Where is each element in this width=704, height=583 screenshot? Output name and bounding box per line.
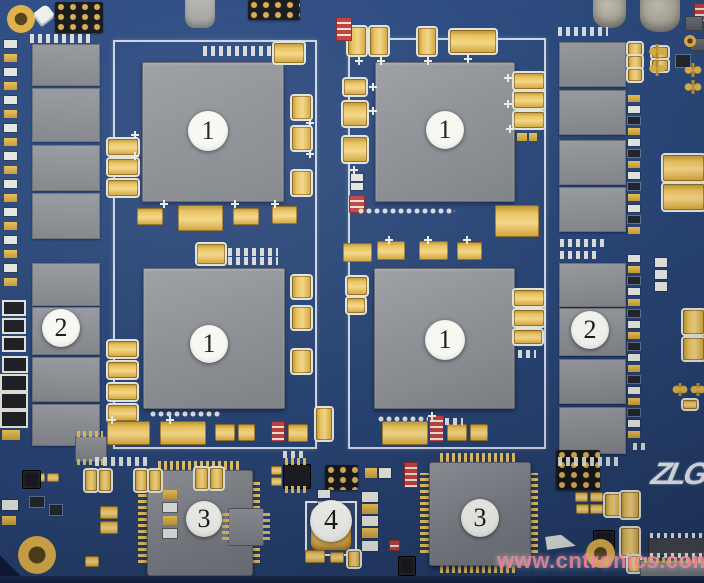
polarity-mark [355, 57, 363, 65]
capacitor [628, 56, 642, 68]
capacitor [590, 504, 603, 514]
pad [4, 180, 17, 188]
memory-chip [559, 140, 626, 185]
capacitor [108, 159, 138, 175]
pad [628, 277, 640, 284]
memory-chip [559, 359, 626, 404]
pcb-board-photo: 1 1 1 1 2 2 3 3 4 ZLG www.cntronics.com [0, 0, 704, 583]
callout-1b: 1 [426, 111, 464, 149]
pad [628, 95, 640, 102]
memory-chip [559, 42, 626, 87]
pad [4, 96, 17, 104]
pad [2, 516, 16, 525]
polarity-mark [306, 119, 314, 127]
capacitor [514, 310, 544, 326]
capacitor [457, 242, 482, 260]
via-pair [690, 383, 704, 396]
zlg-logo: ZLG [648, 456, 704, 492]
polarity-mark [306, 150, 314, 158]
pad [365, 468, 377, 478]
capacitor [343, 243, 372, 262]
pad [4, 152, 17, 160]
capacitor [178, 205, 223, 231]
polarity-mark [166, 416, 174, 424]
pad [4, 124, 17, 132]
memory-chip [559, 90, 626, 135]
capacitor [85, 470, 97, 491]
pad [628, 310, 640, 317]
capacitor [447, 424, 467, 441]
pad [628, 183, 640, 190]
silkscreen-row [228, 257, 278, 265]
polarity-mark [504, 100, 512, 108]
polarity-mark [108, 416, 116, 424]
capacitor [316, 408, 332, 440]
via-pad [7, 5, 35, 33]
capacitor [514, 73, 544, 89]
capacitor [47, 473, 59, 482]
capacitor [108, 180, 138, 196]
capacitor [305, 550, 325, 563]
pad [628, 150, 640, 157]
pad [628, 321, 640, 328]
pad [4, 208, 17, 216]
pad [628, 255, 640, 262]
capacitor [292, 96, 311, 119]
capacitor [195, 468, 208, 489]
pad [628, 194, 640, 201]
polarity-mark [504, 74, 512, 82]
pad [517, 133, 527, 141]
polarity-mark [231, 200, 239, 208]
pad [4, 236, 17, 244]
capacitor [149, 470, 161, 491]
pad [628, 299, 640, 306]
silkscreen-arrow [543, 519, 575, 550]
capacitor [495, 205, 539, 237]
memory-chip [559, 263, 626, 307]
capacitor [683, 310, 704, 334]
silkscreen-row [558, 457, 620, 466]
capacitor [197, 244, 225, 264]
memory-chip [559, 187, 626, 232]
pin-row [77, 431, 103, 437]
pad [655, 270, 667, 279]
capacitor [108, 384, 137, 400]
small-chip [685, 16, 703, 31]
pad [628, 205, 640, 212]
callout-1d: 1 [425, 320, 465, 360]
pad [163, 503, 177, 512]
pad [628, 139, 640, 146]
polarity-mark [369, 107, 377, 115]
pad [2, 300, 26, 316]
polarity-mark [428, 412, 436, 420]
pad [2, 336, 26, 352]
pad [628, 266, 640, 273]
capacitor [621, 492, 639, 518]
capacitor [99, 470, 111, 491]
capacitor [347, 298, 365, 313]
pad [351, 183, 363, 190]
pad [4, 194, 17, 202]
pin-row [263, 512, 270, 540]
capacitor [683, 400, 697, 409]
capacitor [575, 492, 588, 502]
pad [4, 110, 17, 118]
pad [163, 490, 177, 499]
pad [628, 431, 640, 438]
pad [0, 410, 28, 428]
callout-1c: 1 [190, 325, 228, 363]
red-component [271, 421, 285, 442]
silkscreen-row [30, 34, 94, 43]
pad [628, 376, 640, 383]
capacitor [470, 424, 488, 441]
callout-2-left: 2 [42, 309, 80, 347]
capacitor [107, 421, 150, 445]
capacitor [348, 551, 360, 567]
pad [628, 420, 640, 427]
capacitor [344, 79, 366, 95]
pad [362, 504, 378, 514]
pad [529, 133, 537, 141]
capacitor [271, 477, 282, 486]
pin-row [420, 473, 429, 553]
polarity-mark [385, 236, 393, 244]
pad [628, 387, 640, 394]
pad [628, 332, 640, 339]
red-component [404, 462, 418, 488]
silkscreen-row [560, 251, 600, 259]
polarity-mark [424, 57, 432, 65]
pad [4, 82, 17, 90]
capacitor [137, 208, 163, 225]
pad [628, 365, 640, 372]
capacitor [514, 112, 544, 128]
memory-chip [559, 407, 626, 454]
pad [0, 374, 28, 392]
capacitor [233, 208, 259, 225]
capacitor [663, 184, 704, 210]
capacitor [330, 552, 344, 563]
via-pair [672, 383, 688, 396]
polarity-mark [463, 236, 471, 244]
silkscreen-dots [358, 207, 455, 217]
pad [628, 128, 640, 135]
board-edge [0, 576, 704, 583]
capacitor [238, 424, 255, 441]
capacitor [292, 171, 311, 195]
capacitor [272, 206, 297, 224]
via-pair [648, 44, 666, 59]
pad [628, 106, 640, 113]
pad [628, 343, 640, 350]
silkscreen-dots [150, 410, 220, 419]
pad [2, 356, 28, 373]
callout-1a: 1 [188, 111, 228, 151]
capacitor [108, 362, 137, 378]
pad [4, 138, 17, 146]
capacitor [108, 341, 137, 357]
pad [628, 227, 640, 234]
qfn-chip [398, 556, 416, 576]
memory-chip [32, 88, 100, 142]
callout-3-right: 3 [461, 499, 499, 537]
via-pad [684, 35, 696, 47]
pad [163, 529, 177, 538]
capacitor [292, 307, 311, 329]
pad [362, 541, 378, 551]
polarity-mark [464, 55, 472, 63]
pin-header [556, 450, 600, 490]
memory-chip [32, 263, 100, 306]
polarity-mark [271, 200, 279, 208]
capacitor [135, 470, 147, 491]
silkscreen-row [95, 457, 147, 466]
red-component [336, 17, 352, 41]
pad [379, 468, 391, 478]
pad [655, 258, 667, 267]
pad [4, 264, 17, 272]
pad [628, 161, 640, 168]
silkscreen-row [445, 418, 463, 425]
polarity-mark [424, 236, 432, 244]
pad [163, 516, 177, 525]
memory-chip [32, 357, 100, 402]
pad [4, 166, 17, 174]
polarity-mark [350, 166, 358, 174]
pin-row [285, 458, 307, 465]
watermark: www.cntronics.com [497, 548, 704, 574]
capacitor [292, 127, 311, 150]
callout-4: 4 [310, 500, 352, 542]
pad [4, 68, 17, 76]
capacitor [343, 137, 367, 162]
pad [4, 40, 17, 48]
capacitor [628, 69, 642, 81]
pin-row [440, 453, 518, 462]
pad [628, 172, 640, 179]
capacitor [288, 424, 308, 442]
pad [4, 250, 17, 258]
pad [2, 318, 26, 334]
pin-row [650, 533, 702, 538]
pin-row [138, 481, 147, 563]
edge-component [640, 0, 680, 32]
capacitor [576, 504, 589, 514]
capacitor [450, 30, 496, 53]
pad [628, 354, 640, 361]
pin-header [55, 2, 103, 33]
pin-header [248, 0, 300, 20]
silkscreen-row [228, 248, 278, 256]
polarity-mark [377, 57, 385, 65]
capacitor [215, 424, 235, 441]
silkscreen-row [203, 46, 271, 56]
pad [4, 278, 17, 286]
board-tab [185, 0, 215, 28]
via-pair [648, 61, 666, 76]
callout-3-left: 3 [186, 501, 222, 537]
capacitor [100, 521, 118, 534]
silkscreen-row [518, 350, 536, 358]
pin-row [285, 486, 307, 493]
edge-component [593, 0, 626, 28]
via-pair [683, 80, 703, 94]
pad [628, 117, 640, 124]
pad [362, 492, 378, 502]
pad [2, 430, 20, 440]
pad [30, 497, 44, 507]
polarity-mark [131, 131, 139, 139]
capacitor [100, 506, 118, 519]
capacitor [160, 421, 206, 445]
silkscreen-row [633, 443, 645, 450]
capacitor [514, 290, 544, 306]
pad [4, 222, 17, 230]
polarity-mark [369, 83, 377, 91]
pad [2, 500, 18, 510]
capacitor [590, 492, 603, 502]
pad [362, 516, 378, 526]
pad [4, 54, 17, 62]
capacitor [514, 330, 542, 344]
capacitor [418, 28, 436, 55]
capacitor [663, 155, 704, 181]
capacitor [605, 494, 621, 516]
capacitor [85, 556, 99, 567]
capacitor [370, 27, 388, 55]
capacitor [343, 102, 367, 126]
capacitor [274, 43, 304, 63]
pad [676, 55, 690, 67]
silkscreen-dots [378, 415, 428, 425]
pad [628, 288, 640, 295]
capacitor [347, 277, 367, 295]
memory-chip [32, 145, 100, 191]
pad [351, 174, 363, 181]
capacitor [292, 350, 311, 373]
capacitor [210, 468, 223, 489]
pad [655, 282, 667, 291]
silkscreen-row [283, 451, 307, 458]
qfn-chip [22, 470, 41, 489]
polarity-mark [506, 125, 514, 133]
callout-2-right: 2 [571, 311, 609, 349]
pad [628, 216, 640, 223]
pin-row [222, 512, 229, 540]
silkscreen-row [560, 239, 608, 247]
pin-header [325, 465, 358, 490]
red-component [389, 540, 400, 551]
pad [628, 409, 640, 416]
soic-chip [228, 508, 264, 546]
pin-icon [33, 4, 54, 25]
capacitor [271, 466, 282, 475]
pad [362, 528, 378, 538]
polarity-mark [131, 152, 139, 160]
pad [318, 490, 330, 498]
pad [628, 398, 640, 405]
capacitor [514, 92, 544, 108]
capacitor [292, 276, 311, 298]
capacitor [628, 43, 642, 55]
pad [0, 392, 28, 410]
silkscreen-row [558, 27, 608, 36]
pad [50, 505, 62, 515]
capacitor [683, 338, 704, 360]
polarity-mark [160, 200, 168, 208]
memory-chip [32, 193, 100, 239]
memory-chip [32, 44, 100, 86]
